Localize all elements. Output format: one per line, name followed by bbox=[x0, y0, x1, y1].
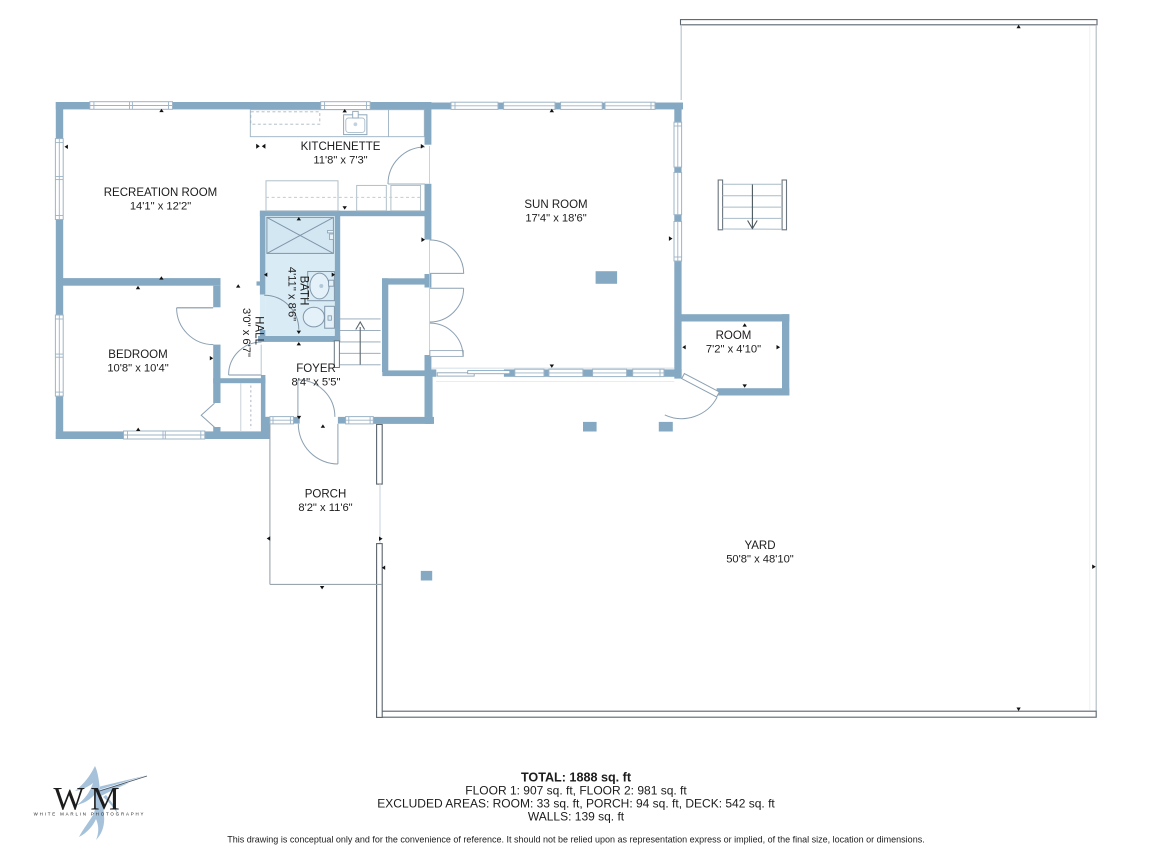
svg-text:HALL: HALL bbox=[253, 316, 265, 345]
svg-text:17'4" x 18'6": 17'4" x 18'6" bbox=[525, 213, 586, 225]
svg-text:SUN ROOM: SUN ROOM bbox=[524, 199, 587, 211]
svg-text:4'11" x 8'6": 4'11" x 8'6" bbox=[286, 267, 298, 321]
svg-text:14'1" x 12'2": 14'1" x 12'2" bbox=[130, 201, 191, 213]
svg-text:10'8" x 10'4": 10'8" x 10'4" bbox=[107, 363, 168, 375]
svg-text:7'2" x 4'10": 7'2" x 4'10" bbox=[706, 344, 761, 356]
svg-text:ROOM: ROOM bbox=[716, 330, 752, 342]
svg-text:BATH: BATH bbox=[298, 276, 310, 306]
svg-text:TOTAL: 1888 sq. ft: TOTAL: 1888 sq. ft bbox=[521, 771, 632, 785]
svg-text:3'0" x 6'7": 3'0" x 6'7" bbox=[240, 308, 252, 357]
svg-text:EXCLUDED AREAS: ROOM: 33 sq. f: EXCLUDED AREAS: ROOM: 33 sq. ft, PORCH: … bbox=[377, 797, 775, 811]
svg-text:11'8" x 7'3": 11'8" x 7'3" bbox=[313, 155, 367, 167]
svg-text:WALLS: 139 sq. ft: WALLS: 139 sq. ft bbox=[528, 810, 625, 824]
svg-text:FOYER: FOYER bbox=[296, 363, 336, 375]
svg-text:BEDROOM: BEDROOM bbox=[108, 349, 167, 361]
svg-text:8'4" x 5'5": 8'4" x 5'5" bbox=[292, 377, 341, 389]
svg-text:WHITE MARLIN PHOTOGRAPHY: WHITE MARLIN PHOTOGRAPHY bbox=[34, 812, 146, 817]
svg-text:This drawing is conceptual onl: This drawing is conceptual only and for … bbox=[227, 835, 924, 845]
svg-text:RECREATION ROOM: RECREATION ROOM bbox=[104, 187, 218, 199]
svg-text:50'8" x 48'10": 50'8" x 48'10" bbox=[726, 554, 794, 566]
svg-text:8'2" x 11'6": 8'2" x 11'6" bbox=[298, 502, 352, 514]
svg-text:YARD: YARD bbox=[744, 540, 775, 552]
svg-text:FLOOR 1: 907 sq. ft, FLOOR 2:: FLOOR 1: 907 sq. ft, FLOOR 2: 981 sq. ft bbox=[465, 784, 687, 798]
svg-text:KITCHENETTE: KITCHENETTE bbox=[301, 141, 381, 153]
svg-text:PORCH: PORCH bbox=[305, 489, 347, 501]
